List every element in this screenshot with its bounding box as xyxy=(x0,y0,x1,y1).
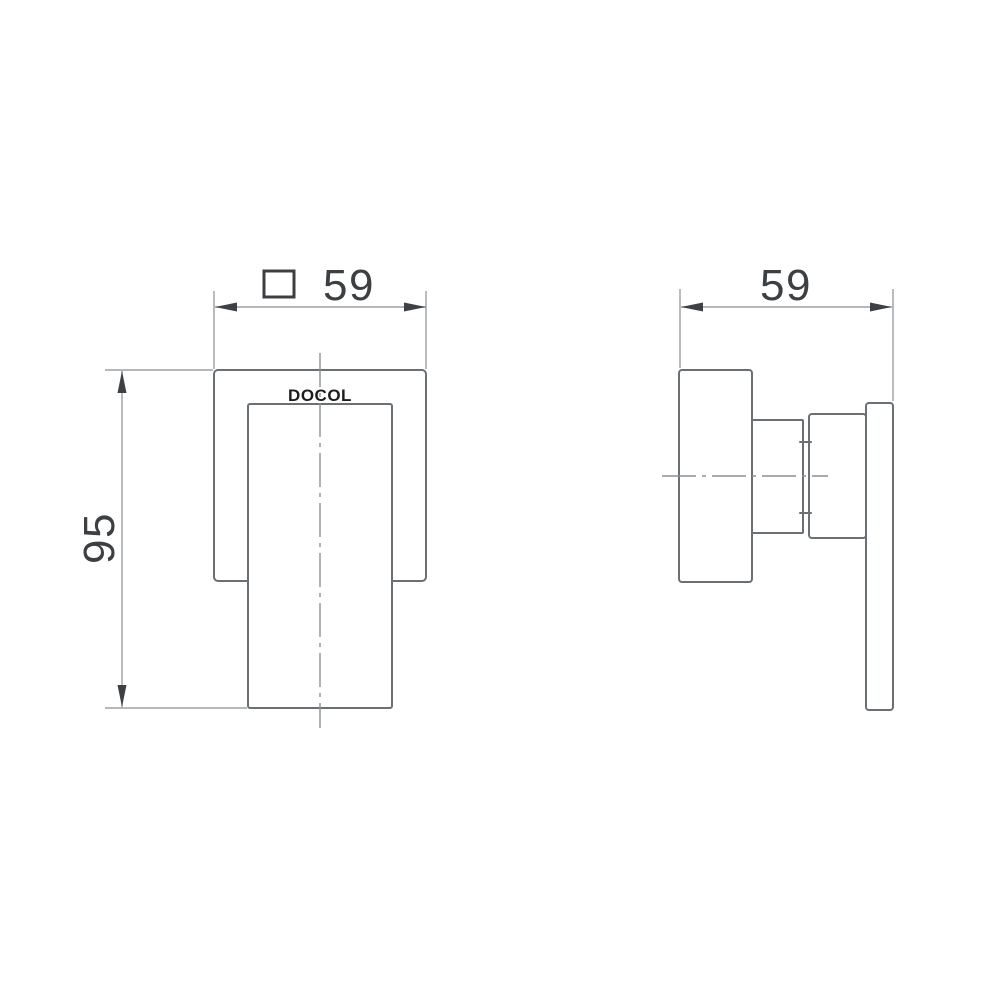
dimensional-drawing: 59 95 DOCOL xyxy=(0,0,1000,1000)
technical-drawing-canvas: 59 95 DOCOL xyxy=(0,0,1000,1000)
side-depth-value: 59 xyxy=(760,261,812,310)
handle-lever-side xyxy=(866,403,893,710)
front-width-value: 59 xyxy=(323,261,375,310)
arrowhead-top-icon xyxy=(118,371,127,393)
front-width-dimension: 59 xyxy=(214,261,426,369)
square-symbol-icon xyxy=(264,271,294,297)
arrowhead-right-icon xyxy=(404,303,426,312)
arrowhead-bottom-icon xyxy=(118,685,127,707)
front-height-value: 95 xyxy=(75,512,124,564)
arrowhead-right-icon xyxy=(870,303,892,312)
arrowhead-left-icon xyxy=(215,303,237,312)
side-view: 59 xyxy=(662,261,893,710)
brand-logo-text: DOCOL xyxy=(288,386,352,405)
side-depth-dimension: 59 xyxy=(680,261,893,401)
front-height-dimension: 95 xyxy=(75,370,247,708)
front-view: 59 95 DOCOL xyxy=(75,261,426,728)
arrowhead-left-icon xyxy=(681,303,703,312)
